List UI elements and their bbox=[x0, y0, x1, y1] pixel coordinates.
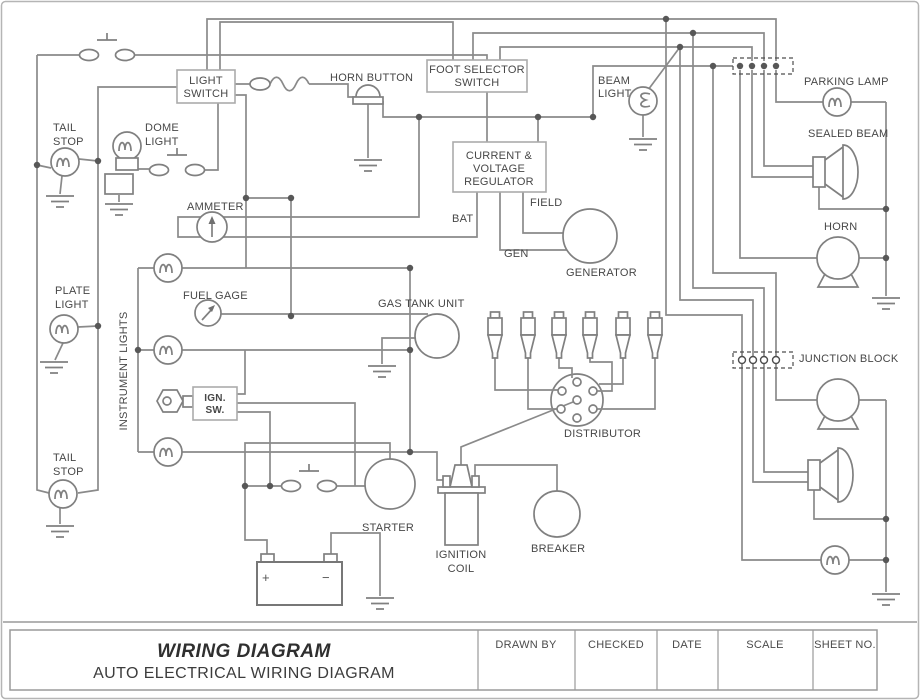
horn-label: HORN bbox=[824, 221, 857, 233]
regulator-label-3: REGULATOR bbox=[464, 176, 534, 188]
tail-stop-lower-label-2: STOP bbox=[53, 466, 84, 478]
foot-selector-label-2: SWITCH bbox=[455, 77, 500, 89]
title-block-col-sheet-no: SHEET NO. bbox=[814, 639, 876, 651]
title-block: WIRING DIAGRAM AUTO ELECTRICAL WIRING DI… bbox=[10, 630, 877, 690]
gas-tank-unit-label: GAS TANK UNIT bbox=[378, 298, 465, 310]
foot-selector-label-1: FOOT SELECTOR bbox=[429, 64, 525, 76]
generator-label: GENERATOR bbox=[566, 267, 637, 279]
parking-lamp-symbol bbox=[823, 88, 851, 116]
regulator-label-2: VOLTAGE bbox=[473, 163, 525, 175]
beam-light-label-2: LIGHT bbox=[598, 88, 632, 100]
battery-positive-label: + bbox=[262, 570, 270, 585]
instrument-light-3 bbox=[154, 438, 182, 466]
horn-button-label: HORN BUTTON bbox=[330, 72, 413, 84]
regulator-label-1: CURRENT & bbox=[466, 150, 533, 162]
tail-stop-lower-label-1: TAIL bbox=[53, 452, 76, 464]
instrument-lights-label: INSTRUMENT LIGHTS bbox=[118, 312, 130, 431]
tail-stop-upper-label-1: TAIL bbox=[53, 122, 76, 134]
ign-sw-label-1: IGN. bbox=[204, 393, 226, 404]
field-label: FIELD bbox=[530, 197, 562, 209]
dome-light-label-2: LIGHT bbox=[145, 136, 179, 148]
ignition-coil-label-2: COIL bbox=[448, 563, 475, 575]
title-block-col-date: DATE bbox=[672, 639, 702, 651]
parking-lamp-label: PARKING LAMP bbox=[804, 76, 889, 88]
title-block-title: WIRING DIAGRAM bbox=[157, 641, 331, 662]
starter-label: STARTER bbox=[362, 522, 414, 534]
title-block-subtitle: AUTO ELECTRICAL WIRING DIAGRAM bbox=[93, 665, 395, 682]
battery-negative-label: − bbox=[322, 570, 330, 585]
horn-2-symbol bbox=[817, 379, 859, 429]
light-switch-label-2: SWITCH bbox=[184, 88, 229, 100]
title-block-col-checked: CHECKED bbox=[588, 639, 644, 651]
breaker-label: BREAKER bbox=[531, 543, 585, 555]
fuse-symbol bbox=[250, 78, 270, 90]
title-block-col-drawn-by: DRAWN BY bbox=[495, 639, 557, 651]
fuel-gage-label: FUEL GAGE bbox=[183, 290, 248, 302]
generator-symbol bbox=[563, 209, 617, 263]
ignition-coil-label-1: IGNITION bbox=[436, 549, 487, 561]
wiring-diagram-page: TAIL STOP DOME LIGHT LIGHT SWITCH HORN B… bbox=[0, 0, 920, 700]
ignition-coil-symbol bbox=[438, 465, 485, 545]
tail-stop-upper-label-2: STOP bbox=[53, 136, 84, 148]
instrument-light-2 bbox=[154, 336, 182, 364]
instrument-light-1 bbox=[154, 254, 182, 282]
plate-light-label-1: PLATE bbox=[55, 285, 90, 297]
sealed-beam-label: SEALED BEAM bbox=[808, 128, 888, 140]
beam-light-label-1: BEAM bbox=[598, 75, 630, 87]
gen-label: GEN bbox=[504, 248, 529, 260]
ign-sw-label-2: SW. bbox=[205, 405, 224, 416]
fuel-gage-symbol bbox=[195, 300, 221, 326]
dome-light-label-1: DOME bbox=[145, 122, 179, 134]
ammeter-label: AMMETER bbox=[187, 201, 244, 213]
bat-label: BAT bbox=[452, 213, 473, 225]
wiring-diagram-canvas: TAIL STOP DOME LIGHT LIGHT SWITCH HORN B… bbox=[0, 0, 920, 700]
ammeter-symbol bbox=[197, 212, 227, 242]
title-block-col-scale: SCALE bbox=[746, 639, 784, 651]
distributor-label: DISTRIBUTOR bbox=[564, 428, 641, 440]
light-switch-label-1: LIGHT bbox=[189, 75, 223, 87]
plate-light-label-2: LIGHT bbox=[55, 299, 89, 311]
breaker-symbol bbox=[534, 491, 580, 537]
junction-block-label: JUNCTION BLOCK bbox=[799, 353, 899, 365]
